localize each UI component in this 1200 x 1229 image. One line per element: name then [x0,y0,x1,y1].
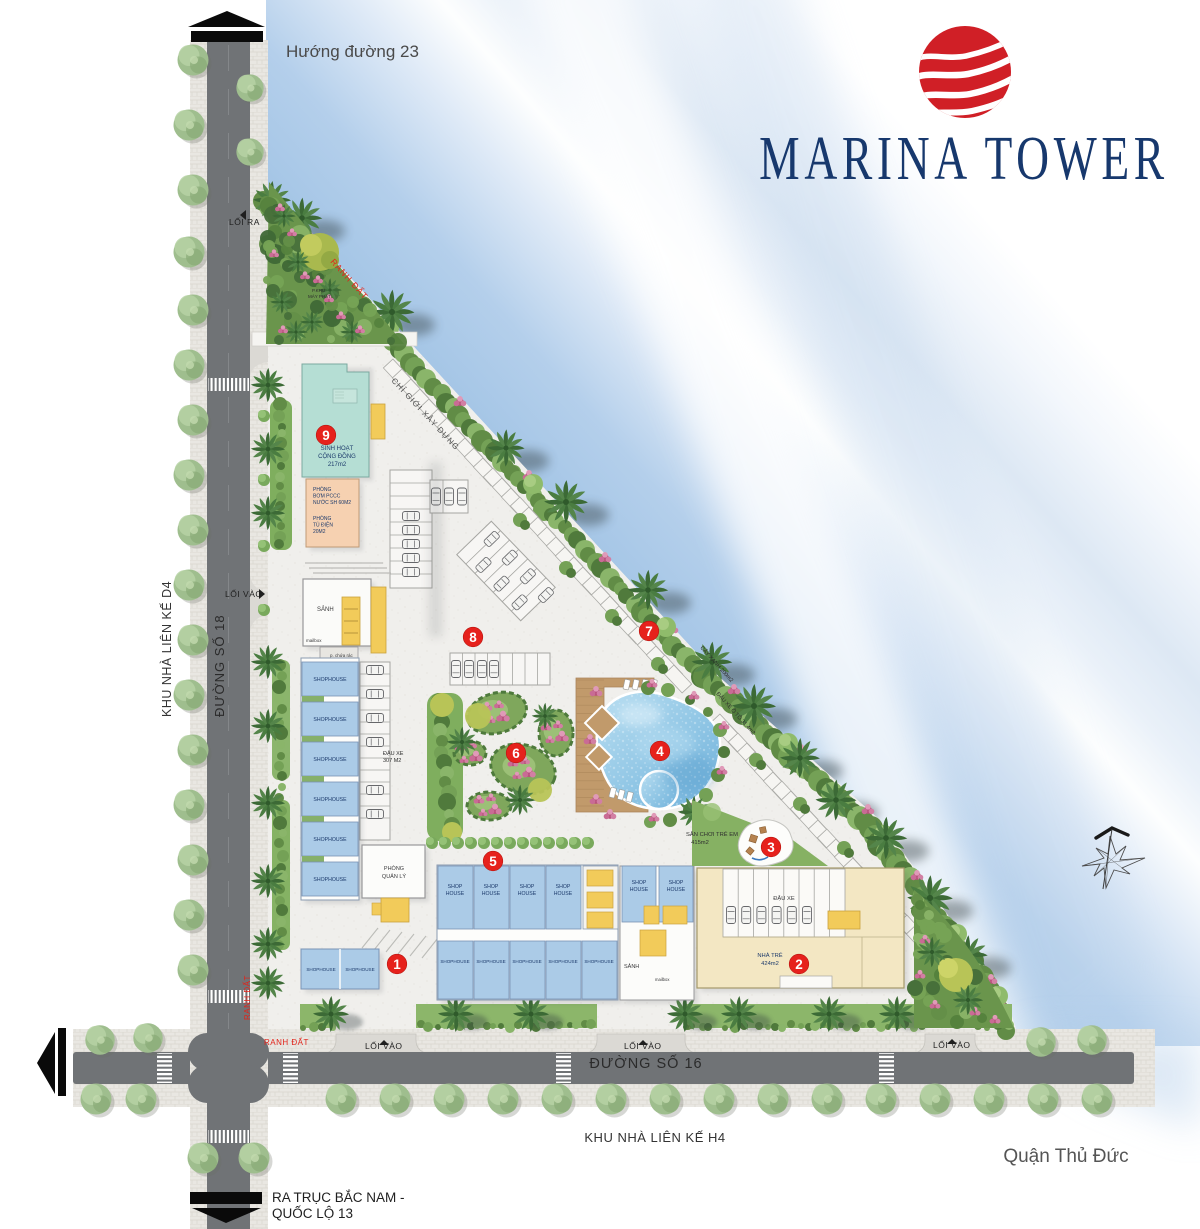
svg-text:1: 1 [393,957,401,972]
svg-text:P.KHU: P.KHU [312,288,325,293]
svg-text:9: 9 [322,428,330,443]
svg-text:2: 2 [795,957,803,972]
svg-text:HOUSE: HOUSE [554,891,573,897]
svg-text:HOUSE: HOUSE [667,887,686,893]
svg-text:424m2: 424m2 [761,961,779,967]
svg-text:5: 5 [489,854,497,869]
svg-text:MARINA TOWER: MARINA TOWER [759,123,1169,193]
svg-text:SẢNH: SẢNH [317,606,334,613]
svg-text:RA TRỤC BẮC NAM -: RA TRỤC BẮC NAM - [272,1190,405,1205]
svg-text:CỘNG ĐỒNG: CỘNG ĐỒNG [318,453,356,460]
svg-text:8: 8 [469,630,477,645]
svg-text:SHOPHOUSE: SHOPHOUSE [313,677,347,683]
svg-text:mailbox: mailbox [655,977,670,982]
svg-text:SÂN CHƠI TRẺ EM: SÂN CHƠI TRẺ EM [686,831,738,838]
svg-text:RANH ĐẤT: RANH ĐẤT [264,1037,309,1047]
svg-text:ĐẬU XE: ĐẬU XE [773,895,795,902]
svg-text:BƠM PCCC: BƠM PCCC [313,494,341,500]
svg-text:SHOPHOUSE: SHOPHOUSE [313,837,347,843]
svg-text:SHOPHOUSE: SHOPHOUSE [476,959,505,964]
svg-text:SHOPHOUSE: SHOPHOUSE [313,877,347,883]
svg-text:QUỐC LỘ 13: QUỐC LỘ 13 [272,1206,353,1221]
svg-text:SHOP: SHOP [669,880,684,886]
svg-text:ĐƯỜNG SỐ 16: ĐƯỜNG SỐ 16 [589,1054,702,1072]
svg-text:Quận Thủ Đức: Quận Thủ Đức [1003,1146,1128,1167]
svg-text:7: 7 [645,624,653,639]
svg-text:mailbox: mailbox [306,638,322,643]
svg-text:ĐƯỜNG SỐ 18: ĐƯỜNG SỐ 18 [212,614,227,717]
svg-text:TỦ ĐIỆN: TỦ ĐIỆN [313,521,333,529]
svg-text:MÁY PHÁT: MÁY PHÁT [308,293,331,299]
svg-text:6: 6 [512,746,520,761]
svg-text:4: 4 [656,744,664,759]
svg-text:SHOPHOUSE: SHOPHOUSE [313,797,347,803]
svg-text:RANH ĐẤT: RANH ĐẤT [242,975,252,1020]
svg-text:SHOPHOUSE: SHOPHOUSE [440,959,469,964]
svg-text:SINH HOẠT: SINH HOẠT [321,446,354,452]
svg-text:HOUSE: HOUSE [482,891,501,897]
svg-text:PHÒNG: PHÒNG [384,865,404,872]
svg-text:LỐI VÀO: LỐI VÀO [225,588,263,599]
svg-text:SHOPHOUSE: SHOPHOUSE [313,757,347,763]
svg-text:SHOP: SHOP [484,884,499,890]
svg-text:20M2: 20M2 [313,529,326,535]
svg-text:HOUSE: HOUSE [518,891,537,897]
svg-text:NHÀ TRẺ: NHÀ TRẺ [757,952,782,959]
svg-text:SẢNH: SẢNH [624,963,639,970]
svg-text:HOUSE: HOUSE [446,891,465,897]
svg-text:KHU NHÀ LIÊN KẾ D4: KHU NHÀ LIÊN KẾ D4 [159,581,174,717]
svg-text:SHOPHOUSE: SHOPHOUSE [306,967,335,972]
svg-text:PHÒNG: PHÒNG [313,515,331,522]
svg-text:SHOP: SHOP [632,880,647,886]
svg-text:SHOPHOUSE: SHOPHOUSE [548,959,577,964]
svg-text:SHOP: SHOP [556,884,571,890]
svg-text:3: 3 [767,840,775,855]
svg-text:SHOPHOUSE: SHOPHOUSE [345,967,374,972]
svg-text:PHÒNG: PHÒNG [313,486,331,493]
svg-text:415m2: 415m2 [691,840,709,846]
svg-text:SHOPHOUSE: SHOPHOUSE [584,959,613,964]
svg-text:KHU NHÀ LIÊN KẾ H4: KHU NHÀ LIÊN KẾ H4 [584,1130,725,1145]
svg-text:307 M2: 307 M2 [383,758,401,764]
svg-text:SHOPHOUSE: SHOPHOUSE [512,959,541,964]
svg-text:QUẢN LÝ: QUẢN LÝ [382,873,406,880]
svg-text:SHOPHOUSE: SHOPHOUSE [313,717,347,723]
svg-text:SHOP: SHOP [520,884,535,890]
svg-text:Hướng đường 23: Hướng đường 23 [286,42,419,61]
svg-text:HOUSE: HOUSE [630,887,649,893]
svg-text:NƯỚC SH 60M2: NƯỚC SH 60M2 [313,499,351,506]
svg-text:ĐẬU XE: ĐẬU XE [383,750,404,757]
svg-text:217m2: 217m2 [328,462,347,468]
svg-text:SHOP: SHOP [448,884,463,890]
svg-text:p. chứa rác: p. chứa rác [330,653,354,658]
